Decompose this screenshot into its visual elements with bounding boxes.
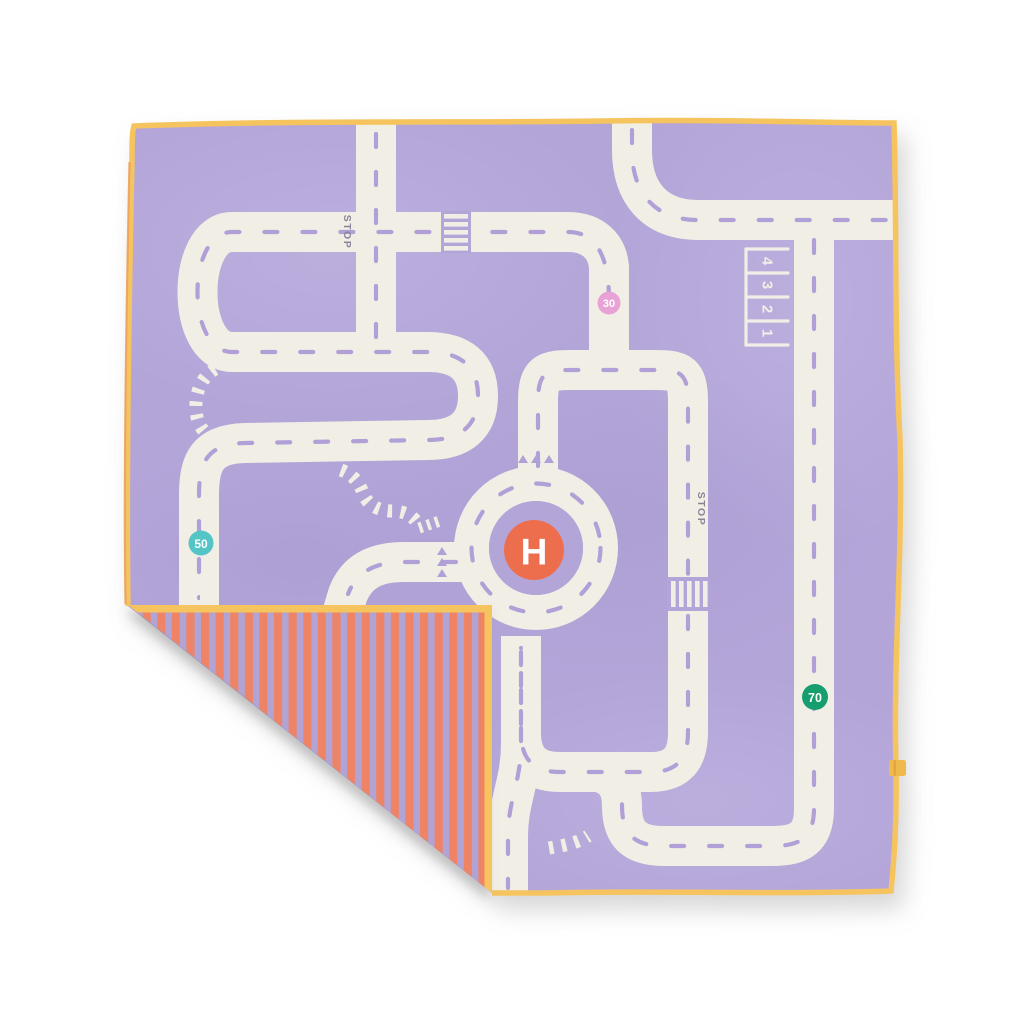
stop-marking-top: STOP [341,215,353,249]
speed-sign-30-label: 30 [603,298,615,310]
parking-number-2: 2 [759,305,776,313]
edge-tag-body [889,760,906,776]
parking-number-4: 4 [759,257,776,266]
flap-binding-top [128,605,492,613]
speed-sign-50-label: 50 [194,537,208,551]
flap-binding-right [485,605,493,893]
edge-tag [889,760,906,776]
play-mat-scene: 4 3 2 1 STOP STOP H 30 [0,0,1024,1024]
helipad-letter: H [521,532,548,573]
stop-marking-right: STOP [695,492,707,526]
parking-number-3: 3 [759,281,776,289]
edge-tag-stitch [894,760,896,776]
speed-sign-70-label: 70 [808,691,822,705]
parking-number-1: 1 [759,329,776,337]
helipad: H [504,520,564,580]
product-photo: 4 3 2 1 STOP STOP H 30 [0,0,1024,1024]
